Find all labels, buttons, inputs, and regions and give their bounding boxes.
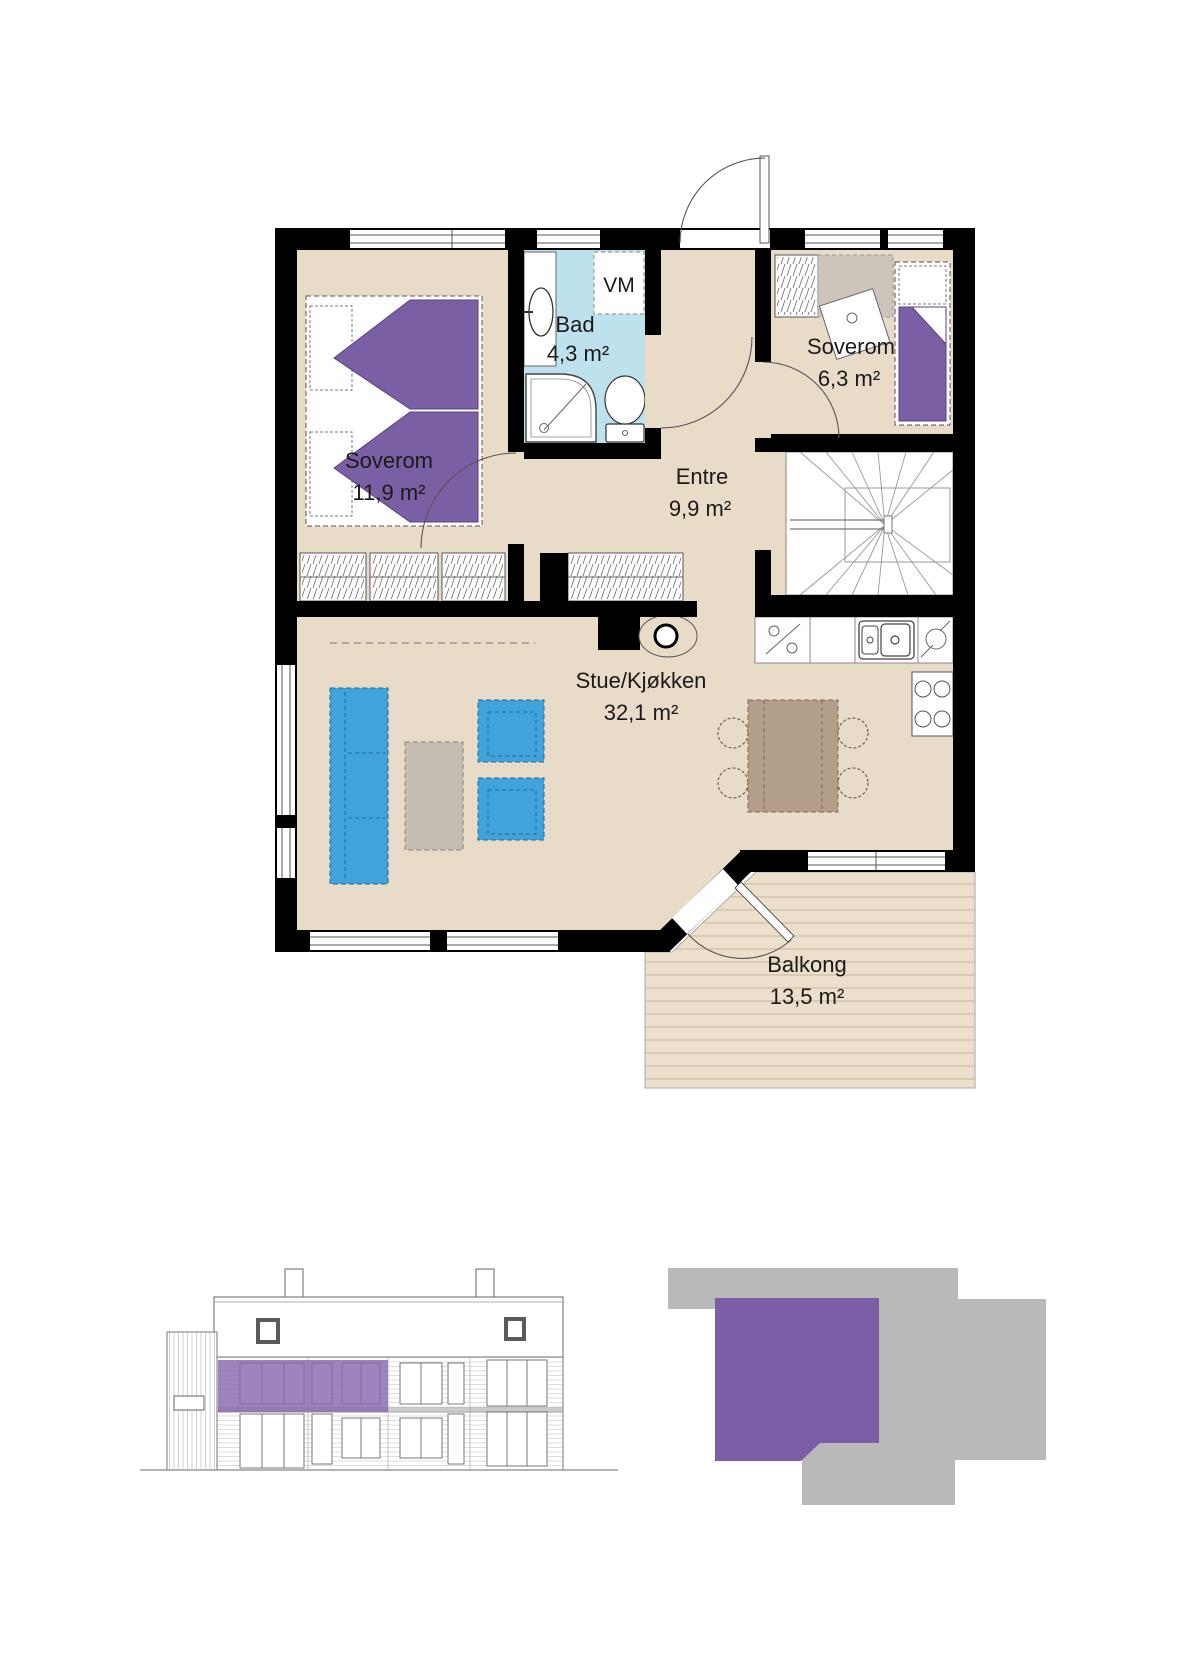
stairs-icon: [786, 452, 953, 595]
window-bedroom2-a: [805, 230, 880, 248]
window-bedroom1: [350, 230, 505, 248]
room-label-soverom-2: Soverom: [807, 334, 895, 359]
room-area-stue-kjokken: 32,1 m²: [604, 700, 679, 725]
balcony-sliding-door: [808, 852, 945, 870]
window-bedroom2-b: [888, 230, 943, 248]
site-unit-highlight: [715, 1298, 879, 1461]
room-label-bad: Bad: [555, 312, 594, 337]
room-area-entre: 9,9 m²: [669, 496, 731, 521]
room-label-balkong: Balkong: [767, 952, 847, 977]
roof-window-2: [504, 1317, 526, 1341]
cooktop-icon: [912, 672, 953, 736]
wardrobe-icons: [300, 553, 683, 601]
window-living-west-a: [277, 665, 295, 815]
single-bed-icon: [895, 262, 950, 425]
room-area-soverom-1: 11,9 m²: [353, 480, 426, 505]
apartment-plan-sheet: VM: [0, 0, 1180, 1669]
elevation-unit-highlight: [218, 1360, 388, 1412]
chimney-column: [598, 617, 640, 650]
shower-icon: [526, 374, 596, 442]
room-label-entre: Entre: [676, 464, 729, 489]
room-area-balkong: 13,5 m²: [770, 984, 845, 1009]
room-area-soverom-2: 6,3 m²: [818, 366, 880, 391]
room-label-soverom-1: Soverom: [345, 448, 433, 473]
annex-vent: [174, 1396, 204, 1410]
roof-window-1: [256, 1318, 280, 1344]
kitchen-sink-icon: [859, 621, 914, 659]
site-building-block: [879, 1299, 1046, 1460]
site-building-tab: [802, 1443, 955, 1505]
washing-machine-icon: VM: [594, 252, 644, 314]
room-area-bad: 4,3 m²: [547, 341, 609, 366]
window-living-south-b: [447, 932, 558, 950]
annex: [167, 1332, 217, 1470]
water-heater-icon: [639, 615, 697, 657]
room-label-stue-kjokken: Stue/Kjøkken: [576, 668, 707, 693]
window-living-west-b: [277, 828, 295, 878]
sofa-icon: [330, 688, 388, 884]
floor-plan: VM: [275, 156, 980, 1088]
kitchen-counter: [755, 617, 953, 663]
window-living-south-a: [310, 932, 430, 950]
window-bath: [537, 230, 600, 248]
washing-machine-label: VM: [603, 274, 635, 297]
coffee-table-icon: [405, 742, 463, 850]
toilet-icon: [605, 376, 645, 442]
